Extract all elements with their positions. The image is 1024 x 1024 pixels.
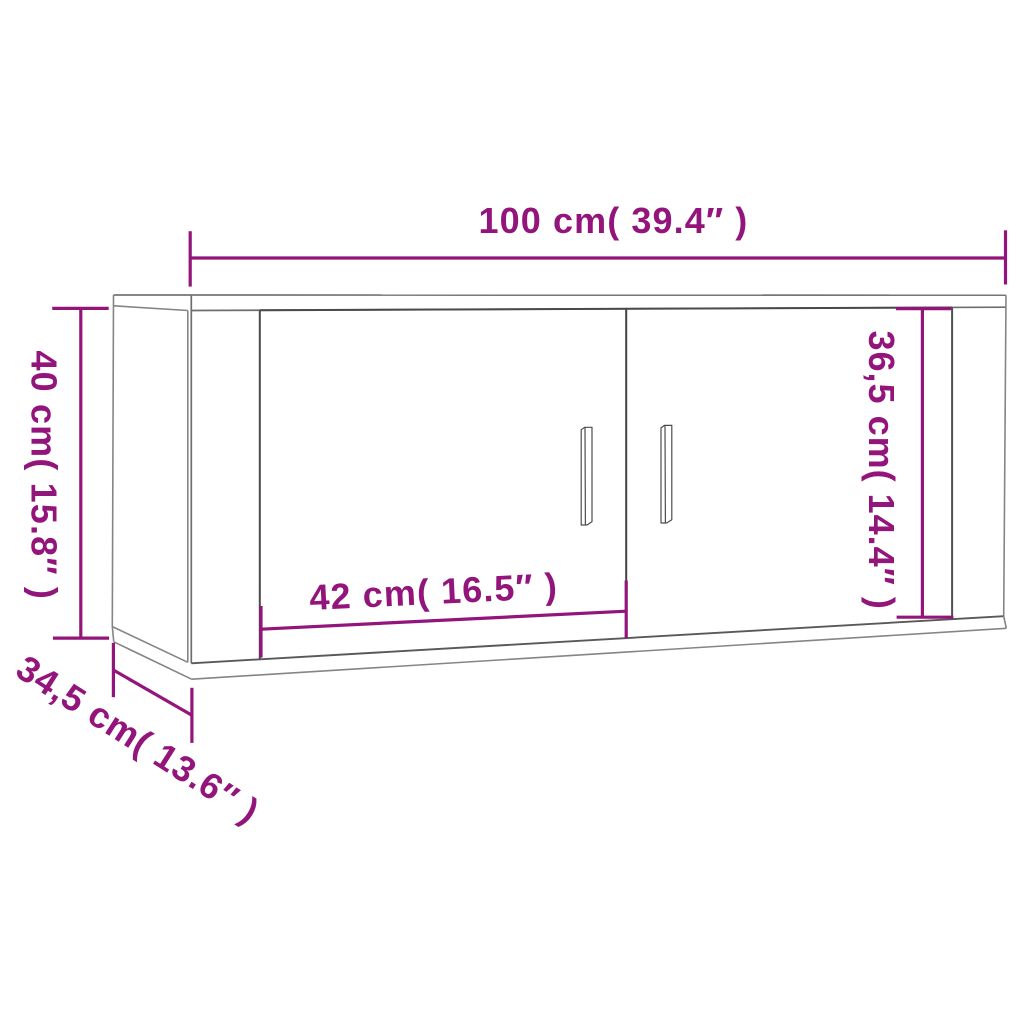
svg-text:100 cm( 39.4″ ): 100 cm( 39.4″ ) (479, 200, 749, 241)
svg-text:36,5 cm( 14.4″ ): 36,5 cm( 14.4″ ) (861, 331, 902, 610)
svg-text:40 cm( 15.8″ ): 40 cm( 15.8″ ) (24, 351, 65, 600)
